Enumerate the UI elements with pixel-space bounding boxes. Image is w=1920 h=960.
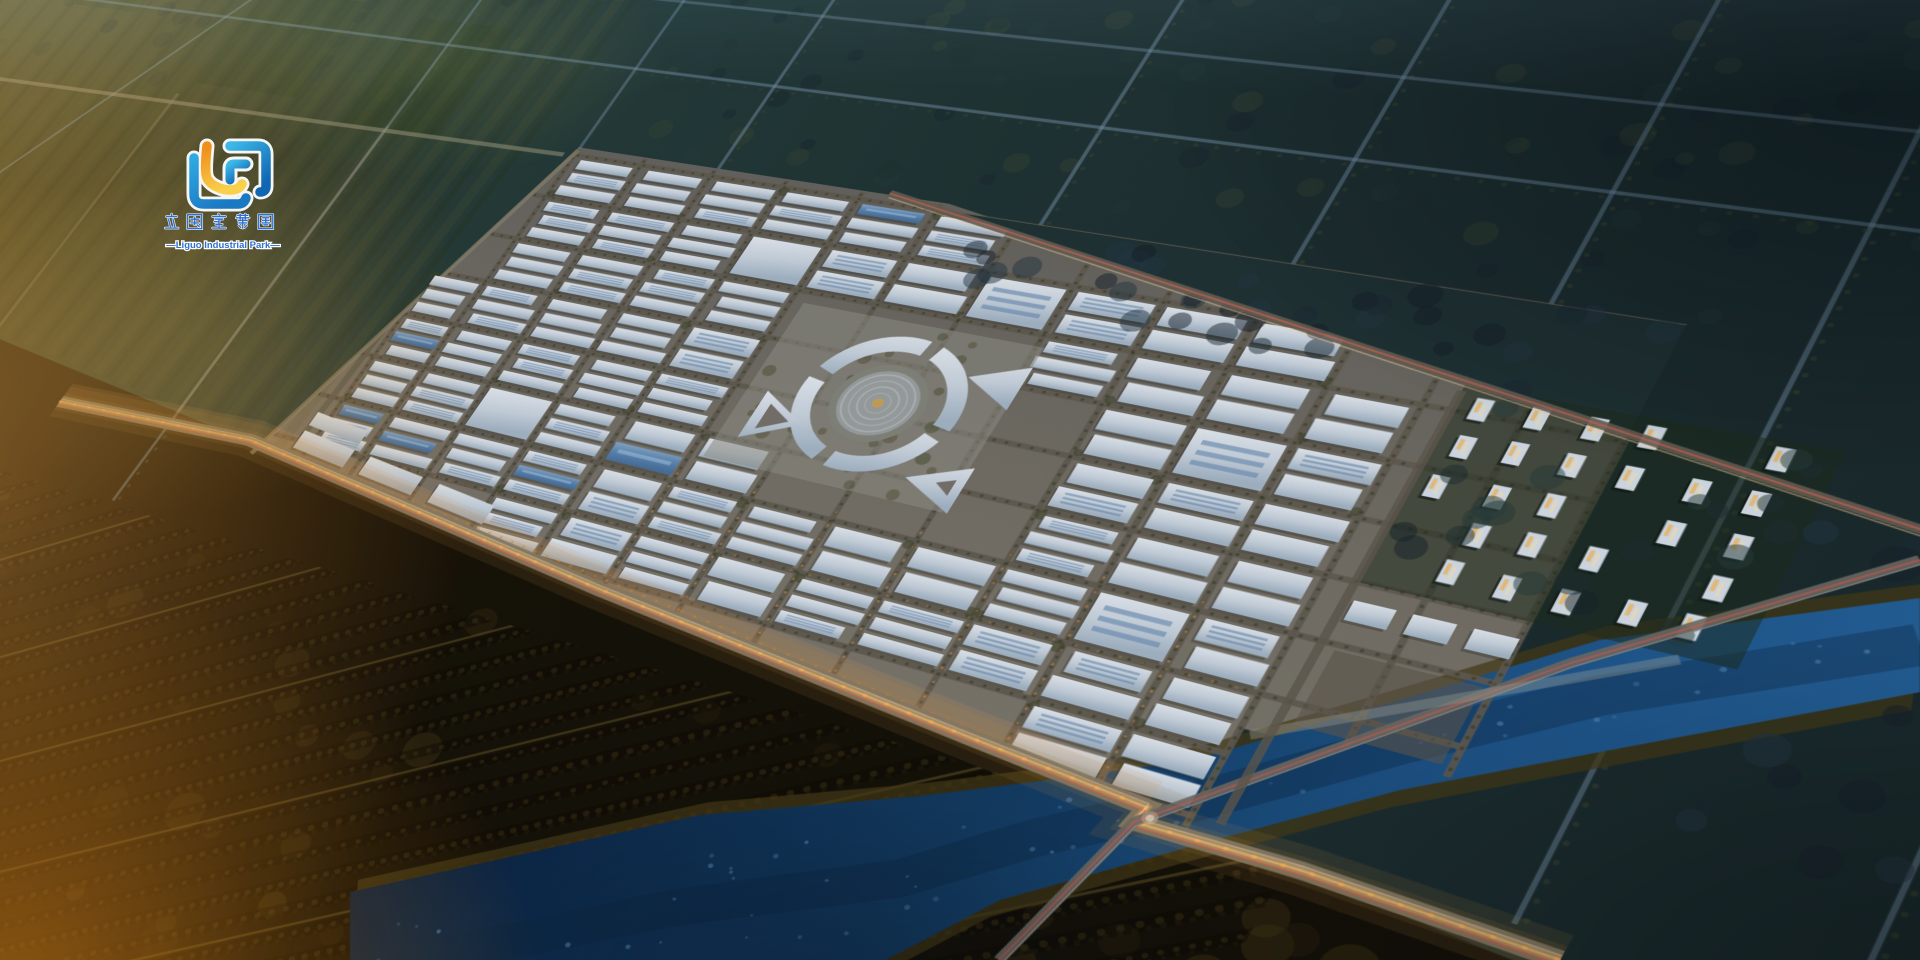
- svg-text:—Liguo Industrial Park—: —Liguo Industrial Park—: [166, 240, 280, 251]
